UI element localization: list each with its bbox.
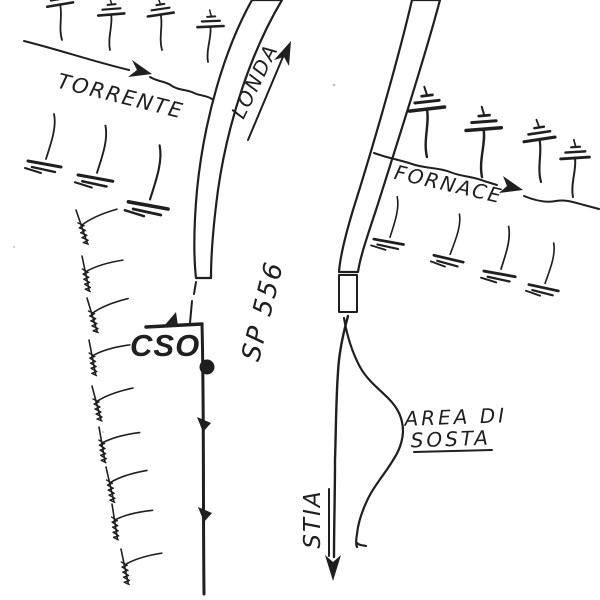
tree-icon xyxy=(25,114,61,173)
trees-fornace-south xyxy=(371,197,560,297)
scrub-icon xyxy=(92,386,133,421)
stia-label: STIA xyxy=(300,489,326,548)
londa-label: LONDA xyxy=(226,40,283,123)
tree-icon xyxy=(526,242,560,296)
cso-site: CSO xyxy=(130,312,215,594)
tree-icon xyxy=(147,0,175,50)
trees-torrente-north xyxy=(46,0,224,63)
rest-area-label-line2: SOSTA xyxy=(410,426,491,453)
fornace-label: FORNACE xyxy=(392,160,505,208)
londa-direction-arrow: LONDA xyxy=(226,40,291,140)
hatched-road-band xyxy=(339,0,440,272)
scrub-row xyxy=(76,207,162,586)
hatched-road-block xyxy=(339,275,357,312)
road-centerline xyxy=(334,316,348,557)
stream-line xyxy=(24,41,129,70)
tree-icon xyxy=(371,197,403,250)
tree-icon xyxy=(75,126,113,188)
rest-area-boundary xyxy=(344,318,403,547)
torrente-flow-arrow-icon xyxy=(128,60,152,77)
tree-icon xyxy=(195,9,225,63)
tree-icon xyxy=(409,87,444,157)
fornace-stream: FORNACE xyxy=(374,153,599,209)
tree-icon xyxy=(125,145,168,216)
road-dash xyxy=(194,282,196,294)
hand-drawn-map: TORRENTE LONDA SP 556 STIA xyxy=(0,0,600,600)
map-canvas: TORRENTE LONDA SP 556 STIA xyxy=(0,0,600,600)
speck xyxy=(102,431,104,433)
torrente-label: TORRENTE xyxy=(55,69,187,124)
tree-icon xyxy=(97,0,125,50)
dot-marker-icon xyxy=(200,360,215,375)
scrub-icon xyxy=(76,207,119,245)
scrub-icon xyxy=(87,340,130,378)
speck xyxy=(333,84,336,87)
tree-icon xyxy=(46,0,75,41)
tree-icon xyxy=(431,213,466,268)
tree-icon xyxy=(559,139,591,198)
trees-torrente-south xyxy=(25,114,168,216)
tree-icon xyxy=(481,226,515,282)
scrub-icon xyxy=(87,297,129,333)
scrub-icon xyxy=(108,504,152,543)
stia-arrowhead-icon xyxy=(325,555,341,581)
road-dash xyxy=(190,301,192,323)
tree-icon xyxy=(523,119,556,182)
speck xyxy=(13,246,15,248)
scrub-icon xyxy=(105,467,147,503)
torrente-stream: TORRENTE xyxy=(24,41,212,124)
road-name-label: SP 556 xyxy=(236,258,290,364)
scrub-icon xyxy=(119,549,162,586)
tree-icon xyxy=(464,106,502,177)
cso-boundary-top xyxy=(146,324,202,327)
cso-label: CSO xyxy=(130,328,200,363)
area-di-sosta: AREA DI SOSTA xyxy=(344,318,507,547)
stream-line xyxy=(524,196,599,209)
scan-specks xyxy=(13,84,336,434)
hatched-road-band xyxy=(194,0,282,278)
scrub-icon xyxy=(80,256,123,293)
